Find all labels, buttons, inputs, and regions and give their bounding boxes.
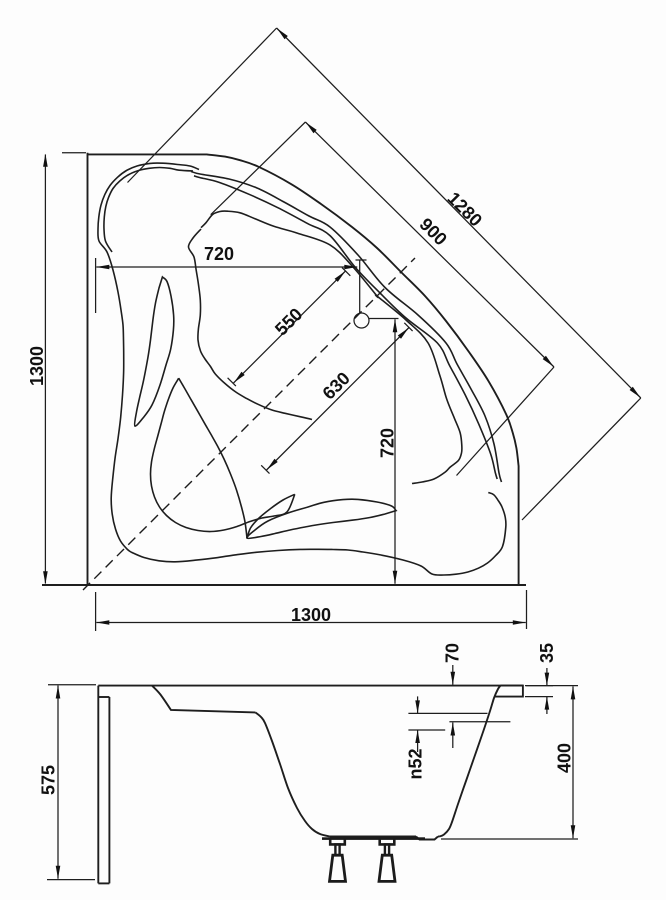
svg-text:n52: n52 [406, 748, 426, 779]
svg-text:35: 35 [537, 643, 557, 663]
svg-text:70: 70 [443, 643, 463, 663]
svg-text:1300: 1300 [27, 346, 47, 386]
svg-text:900: 900 [416, 214, 451, 249]
svg-text:1300: 1300 [291, 605, 331, 625]
svg-text:400: 400 [555, 743, 575, 773]
svg-text:550: 550 [271, 304, 306, 339]
svg-text:575: 575 [39, 765, 59, 795]
svg-text:720: 720 [378, 428, 398, 458]
svg-text:720: 720 [204, 244, 234, 264]
svg-text:1280: 1280 [444, 188, 486, 230]
svg-text:630: 630 [319, 368, 354, 403]
